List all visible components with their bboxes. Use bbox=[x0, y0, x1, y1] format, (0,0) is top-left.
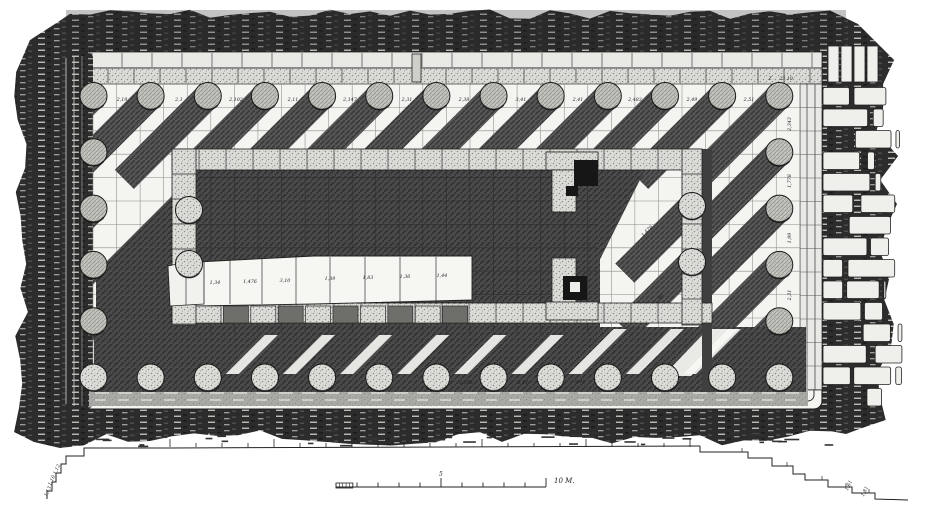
north-wall bbox=[172, 149, 702, 170]
column bbox=[652, 83, 679, 110]
debris-dash bbox=[448, 437, 452, 439]
debris-block bbox=[861, 195, 895, 213]
debris-block bbox=[849, 217, 890, 235]
dimension-label: 2,41 bbox=[572, 97, 584, 103]
dimension-label: 1,39 bbox=[325, 276, 336, 282]
debris-dash bbox=[390, 438, 398, 440]
debris-dash bbox=[729, 432, 738, 434]
debris-dash bbox=[101, 431, 113, 433]
foundation-block bbox=[360, 306, 385, 323]
debris-block bbox=[823, 152, 860, 170]
dimension-label: 2,49 bbox=[686, 97, 698, 103]
debris-dash bbox=[138, 446, 148, 448]
debris-block bbox=[854, 88, 886, 106]
dimension-label: 1,44 bbox=[437, 273, 448, 279]
debris-dash bbox=[103, 440, 112, 442]
debris-dash bbox=[364, 437, 379, 439]
debris-block bbox=[823, 109, 868, 127]
debris-dash bbox=[784, 439, 799, 441]
foundation-block bbox=[333, 306, 358, 323]
foundation-block bbox=[415, 306, 440, 323]
debris-dash bbox=[476, 431, 484, 433]
debris-dash bbox=[210, 433, 220, 435]
column bbox=[251, 83, 278, 110]
debris-dash bbox=[641, 444, 645, 446]
column bbox=[423, 83, 450, 110]
dimension-label: 3,41 bbox=[516, 97, 527, 103]
debris-block bbox=[848, 260, 895, 278]
dimension-label: 2,195 bbox=[458, 380, 473, 386]
debris-block bbox=[868, 152, 875, 170]
debris-block bbox=[873, 109, 883, 127]
dimension-label: 2,102 bbox=[228, 97, 243, 103]
upright-block bbox=[841, 46, 852, 82]
column bbox=[80, 308, 107, 335]
dimension-label: 3,10 bbox=[280, 278, 291, 284]
column bbox=[709, 364, 736, 391]
plan-svg: 510 M. 2,192,12,1022,112,1472,312,383,41… bbox=[0, 0, 944, 512]
debris-dash bbox=[541, 436, 554, 438]
debris-dash bbox=[217, 436, 226, 438]
column bbox=[537, 364, 564, 391]
dimension-label: 2,343 bbox=[787, 117, 793, 132]
column bbox=[766, 195, 793, 222]
debris-dash bbox=[129, 436, 136, 438]
dimension-label: 1,36 bbox=[400, 274, 411, 280]
column bbox=[594, 83, 621, 110]
column bbox=[594, 364, 621, 391]
debris-block bbox=[896, 367, 902, 385]
debris-block bbox=[871, 238, 889, 256]
debris-dash bbox=[380, 431, 385, 433]
column bbox=[137, 364, 164, 391]
debris-block bbox=[875, 174, 881, 192]
dimension-label: 2,11 bbox=[517, 380, 529, 386]
debris-dash bbox=[587, 432, 598, 434]
debris-block bbox=[823, 88, 849, 106]
debris-dash bbox=[650, 435, 664, 437]
debris-dash bbox=[572, 434, 580, 436]
debris-block bbox=[823, 238, 867, 256]
foundation-block bbox=[443, 306, 468, 323]
column bbox=[480, 364, 507, 391]
pronaos-front bbox=[682, 149, 702, 325]
column bbox=[766, 139, 793, 166]
debris-dash bbox=[624, 441, 635, 443]
euthynteria-course bbox=[74, 52, 822, 68]
dimension-label: 23,10 bbox=[778, 76, 793, 82]
column bbox=[80, 83, 107, 110]
debris-dash bbox=[146, 436, 151, 438]
debris-dash bbox=[206, 438, 213, 440]
column bbox=[709, 83, 736, 110]
column bbox=[537, 83, 564, 110]
anta-L-bar bbox=[546, 302, 598, 320]
debris-block bbox=[823, 346, 866, 364]
debris-dash bbox=[463, 441, 476, 443]
dimension-label: 1,778 bbox=[787, 174, 793, 188]
ground-top-darkening bbox=[66, 10, 846, 48]
foundation-block bbox=[251, 306, 276, 323]
debris-dash bbox=[161, 436, 167, 438]
upright-block bbox=[867, 46, 878, 82]
column bbox=[137, 83, 164, 110]
temple-plan-figure: 510 M. 2,192,12,1022,112,1472,312,383,41… bbox=[0, 0, 944, 512]
debris-block bbox=[855, 131, 891, 149]
column bbox=[679, 249, 706, 276]
debris-block bbox=[823, 367, 850, 385]
dimension-label: 1,83 bbox=[363, 275, 374, 281]
debris-block bbox=[823, 174, 870, 192]
column bbox=[480, 83, 507, 110]
foundation-block bbox=[196, 306, 221, 323]
foundation-block bbox=[306, 306, 331, 323]
debris-block bbox=[823, 260, 843, 278]
column bbox=[80, 195, 107, 222]
column bbox=[176, 251, 203, 278]
debris-dash bbox=[487, 437, 492, 439]
debris-dash bbox=[322, 430, 337, 432]
debris-block bbox=[884, 281, 886, 299]
column bbox=[80, 364, 107, 391]
foundation-block bbox=[278, 306, 303, 323]
dimension-label: 2,11 bbox=[287, 97, 299, 103]
debris-dash bbox=[133, 433, 140, 435]
debris-block bbox=[823, 281, 843, 299]
column bbox=[176, 197, 203, 224]
dimension-label: 1,99 bbox=[787, 233, 793, 244]
dimension-label: 1,476 bbox=[243, 279, 257, 285]
debris-dash bbox=[308, 443, 314, 445]
debris-dash bbox=[825, 444, 834, 446]
debris-block bbox=[896, 131, 899, 149]
upright-block bbox=[828, 46, 839, 82]
column bbox=[766, 251, 793, 278]
dimension-label: 2,41 bbox=[574, 379, 586, 385]
socket-notch bbox=[570, 282, 580, 292]
debris-dash bbox=[340, 445, 352, 447]
column bbox=[652, 364, 679, 391]
foundation-block bbox=[223, 306, 248, 323]
dimension-label: 1,34 bbox=[210, 280, 221, 286]
column bbox=[80, 251, 107, 278]
debris-block bbox=[863, 324, 890, 342]
dimension-label: 2,147 bbox=[342, 97, 358, 103]
column bbox=[251, 364, 278, 391]
debris-dash bbox=[768, 439, 773, 441]
debris-dash bbox=[750, 434, 763, 436]
column bbox=[309, 364, 336, 391]
debris-block bbox=[854, 367, 891, 385]
dimension-label: Z bbox=[767, 76, 772, 82]
debris-dash bbox=[778, 441, 787, 443]
column bbox=[194, 364, 221, 391]
debris-block bbox=[847, 281, 879, 299]
debris-dash bbox=[222, 441, 229, 443]
dimension-label: 2,31 bbox=[787, 290, 793, 302]
dimension-label: 2,38 bbox=[458, 97, 470, 103]
column bbox=[366, 83, 393, 110]
debris-dash bbox=[120, 434, 129, 436]
column bbox=[679, 193, 706, 220]
debris-block bbox=[898, 324, 902, 342]
upright-block bbox=[854, 46, 865, 82]
dimension-label: 2,483 bbox=[627, 97, 642, 103]
scale-mid-label: 5 bbox=[439, 471, 443, 478]
column bbox=[194, 83, 221, 110]
column bbox=[80, 139, 107, 166]
scale-unit-label: 10 M. bbox=[554, 477, 575, 485]
east-foundation-trench bbox=[702, 149, 712, 392]
debris-dash bbox=[139, 444, 144, 446]
dimension-label: 2,1 bbox=[174, 97, 183, 103]
column bbox=[366, 364, 393, 391]
debris-block bbox=[823, 195, 853, 213]
debris-dash bbox=[431, 439, 445, 441]
column bbox=[309, 83, 336, 110]
drain-block bbox=[412, 54, 421, 82]
debris-dash bbox=[569, 443, 578, 445]
column bbox=[766, 83, 793, 110]
debris-dash bbox=[207, 430, 218, 432]
column bbox=[423, 364, 450, 391]
column bbox=[766, 364, 793, 391]
debris-dash bbox=[662, 437, 674, 439]
column bbox=[766, 308, 793, 335]
debris-block bbox=[867, 389, 882, 407]
debris-dash bbox=[759, 442, 764, 444]
debris-block bbox=[864, 303, 882, 321]
foundation-block bbox=[388, 306, 413, 323]
dimension-label: 2,19 bbox=[116, 97, 128, 103]
debris-block bbox=[823, 303, 861, 321]
debris-dash bbox=[582, 436, 594, 438]
door-socket-black bbox=[574, 160, 598, 186]
debris-block bbox=[875, 346, 902, 364]
dimension-label: 2,51 bbox=[743, 97, 755, 103]
dimension-label: 2,31 bbox=[401, 97, 413, 103]
door-socket-black bbox=[566, 186, 578, 196]
